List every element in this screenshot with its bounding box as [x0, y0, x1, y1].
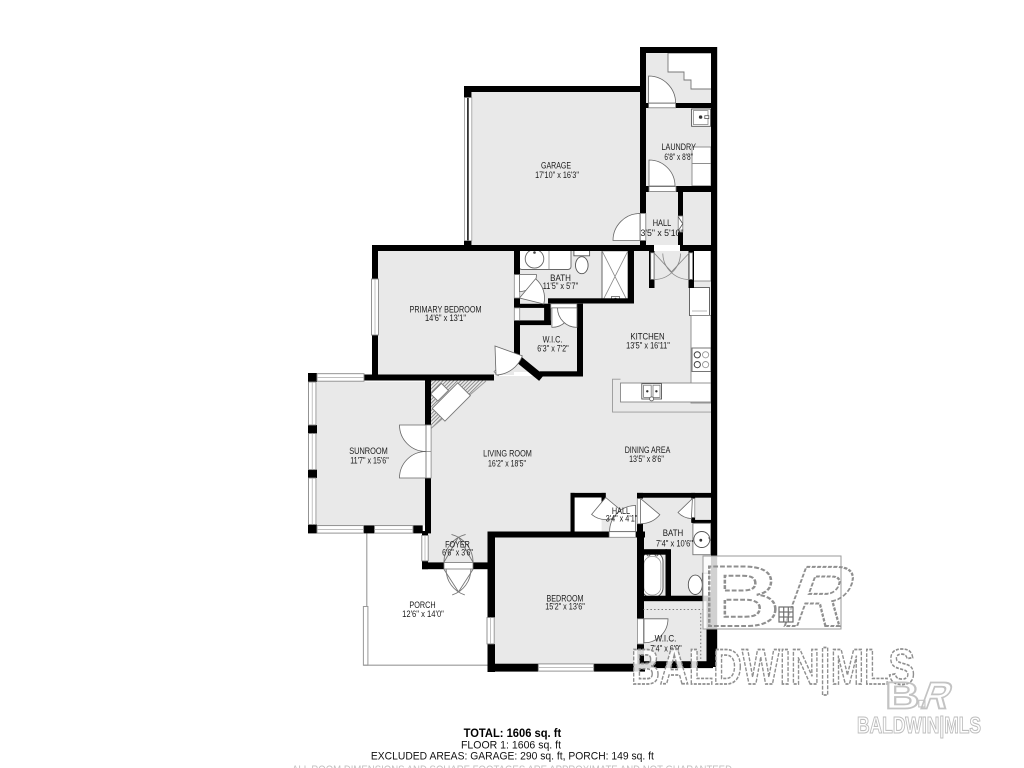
svg-text:13'5" x 8'6": 13'5" x 8'6" [629, 454, 664, 464]
svg-text:ALL ROOM DIMENSIONS AND SQUARE: ALL ROOM DIMENSIONS AND SQUARE FOOTAGES … [292, 764, 732, 768]
svg-text:7'4" x 10'6": 7'4" x 10'6" [656, 538, 693, 548]
svg-text:6'8" x 8'8": 6'8" x 8'8" [664, 152, 693, 162]
svg-text:B: B [702, 548, 780, 645]
svg-text:14'6" x 13'1": 14'6" x 13'1" [425, 313, 466, 323]
svg-text:6'3" x 7'2": 6'3" x 7'2" [537, 344, 569, 354]
svg-text:SUNROOM: SUNROOM [349, 446, 388, 456]
svg-text:EXCLUDED AREAS: GARAGE: 290 sq: EXCLUDED AREAS: GARAGE: 290 sq. ft, PORC… [371, 751, 655, 763]
svg-text:12'6" x 14'0": 12'6" x 14'0" [402, 609, 444, 619]
svg-text:GARAGE: GARAGE [541, 160, 571, 170]
svg-text:LIVING ROOM: LIVING ROOM [483, 449, 532, 459]
svg-text:11'5" x 5'7": 11'5" x 5'7" [543, 281, 578, 291]
svg-text:11'7" x 15'6": 11'7" x 15'6" [350, 456, 389, 466]
svg-text:16'2" x 18'5": 16'2" x 18'5" [488, 459, 526, 469]
svg-text:13'5" x 16'11": 13'5" x 16'11" [626, 340, 670, 350]
svg-text:LAUNDRY: LAUNDRY [662, 142, 696, 152]
svg-text:HALL: HALL [653, 218, 672, 228]
svg-text:TOTAL: 1606 sq. ft: TOTAL: 1606 sq. ft [464, 726, 562, 740]
svg-text:17'10" x 16'3": 17'10" x 16'3" [535, 170, 579, 180]
svg-text:3'5" x 5'10": 3'5" x 5'10" [641, 228, 684, 238]
svg-text:BATH: BATH [663, 528, 684, 538]
svg-text:3'4" x 4'1": 3'4" x 4'1" [606, 514, 638, 524]
svg-text:FLOOR 1: 1606 sq. ft: FLOOR 1: 1606 sq. ft [461, 740, 562, 752]
svg-text:BALDWIN|MLS: BALDWIN|MLS [631, 639, 915, 696]
svg-text:15'2" x 13'6": 15'2" x 13'6" [545, 602, 585, 612]
svg-text:BALDWIN|MLS: BALDWIN|MLS [857, 712, 981, 738]
svg-text:6'6" x 3'6": 6'6" x 3'6" [442, 548, 473, 558]
